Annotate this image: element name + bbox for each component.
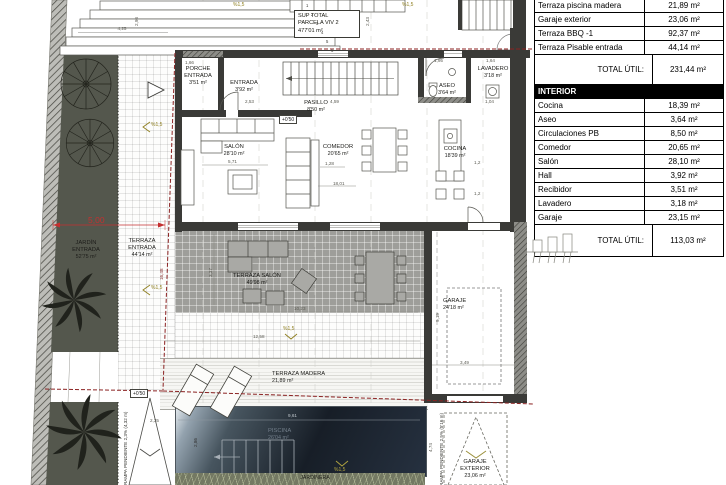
floor-plan-sheet: PORCHEENTRADA 3'51 m² ENTRADA3'92 m² PAS… <box>0 0 726 485</box>
section-detail-sketch <box>0 0 726 485</box>
